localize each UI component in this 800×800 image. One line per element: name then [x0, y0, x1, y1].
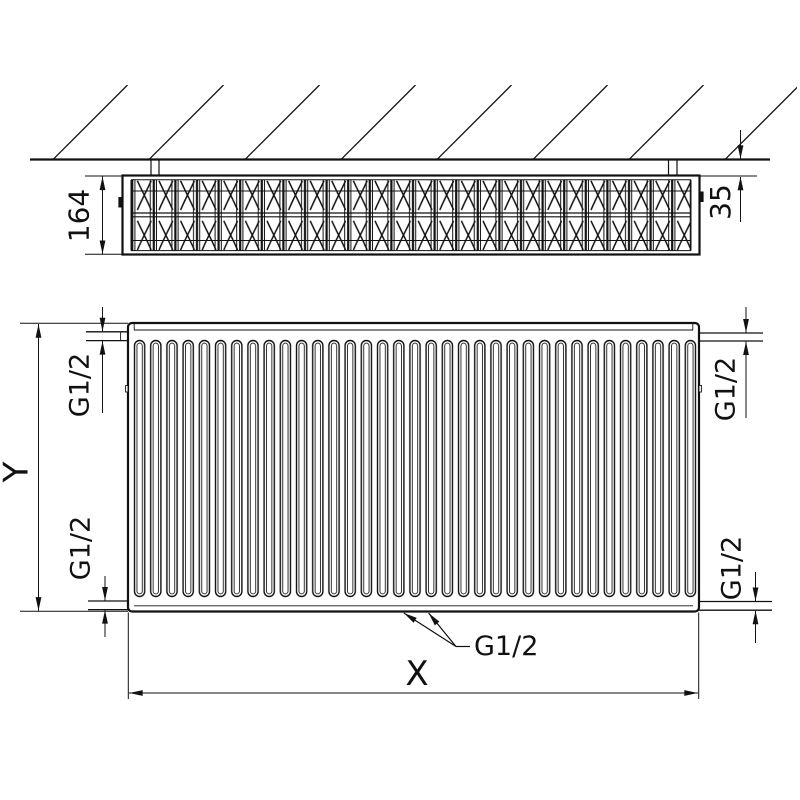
- g12-label-bottom-left: G1/2: [66, 516, 97, 580]
- dim-g12-bottom-left: G1/2: [66, 516, 108, 637]
- side-tab-left: [118, 197, 122, 208]
- wall-bracket-right: [669, 160, 678, 176]
- seam-clip-left: [126, 386, 128, 393]
- connection-stub-top-left: [86, 332, 128, 341]
- side-tab-right: [699, 192, 703, 203]
- wall-section: [30, 85, 797, 160]
- g12-label-top-left: G1/2: [65, 353, 96, 417]
- g12-label-top-right: G1/2: [711, 357, 742, 421]
- width-dim-label: X: [405, 654, 428, 694]
- dim-width-x: X: [128, 613, 698, 700]
- front-view-radiator: [86, 323, 772, 612]
- radiator-technical-drawing: 164 35: [0, 0, 800, 800]
- dim-g12-top-right: G1/2: [711, 307, 749, 421]
- seam-clip-right: [699, 386, 701, 393]
- height-dim-label: Y: [0, 461, 37, 483]
- connection-stub-bottom-left: [88, 601, 128, 610]
- wall-bracket-left: [151, 160, 159, 176]
- g12-label-bottom-right: G1/2: [717, 536, 748, 600]
- dim-depth-164: 164: [63, 176, 123, 254]
- depth-dim-label: 164: [63, 189, 96, 242]
- top-view-radiator: [118, 160, 703, 255]
- front-panel-grooves: [133, 340, 700, 598]
- dim-g12-bottom-right: G1/2: [717, 536, 759, 643]
- wall-gap-dim-label: 35: [704, 184, 737, 220]
- g12-label-bottom-center: G1/2: [474, 631, 538, 662]
- wall-hatching: [40, 85, 797, 160]
- connection-stub-top-right: [699, 333, 763, 341]
- drawing-canvas: 164 35: [0, 0, 800, 800]
- connection-stub-bottom-right: [699, 602, 772, 611]
